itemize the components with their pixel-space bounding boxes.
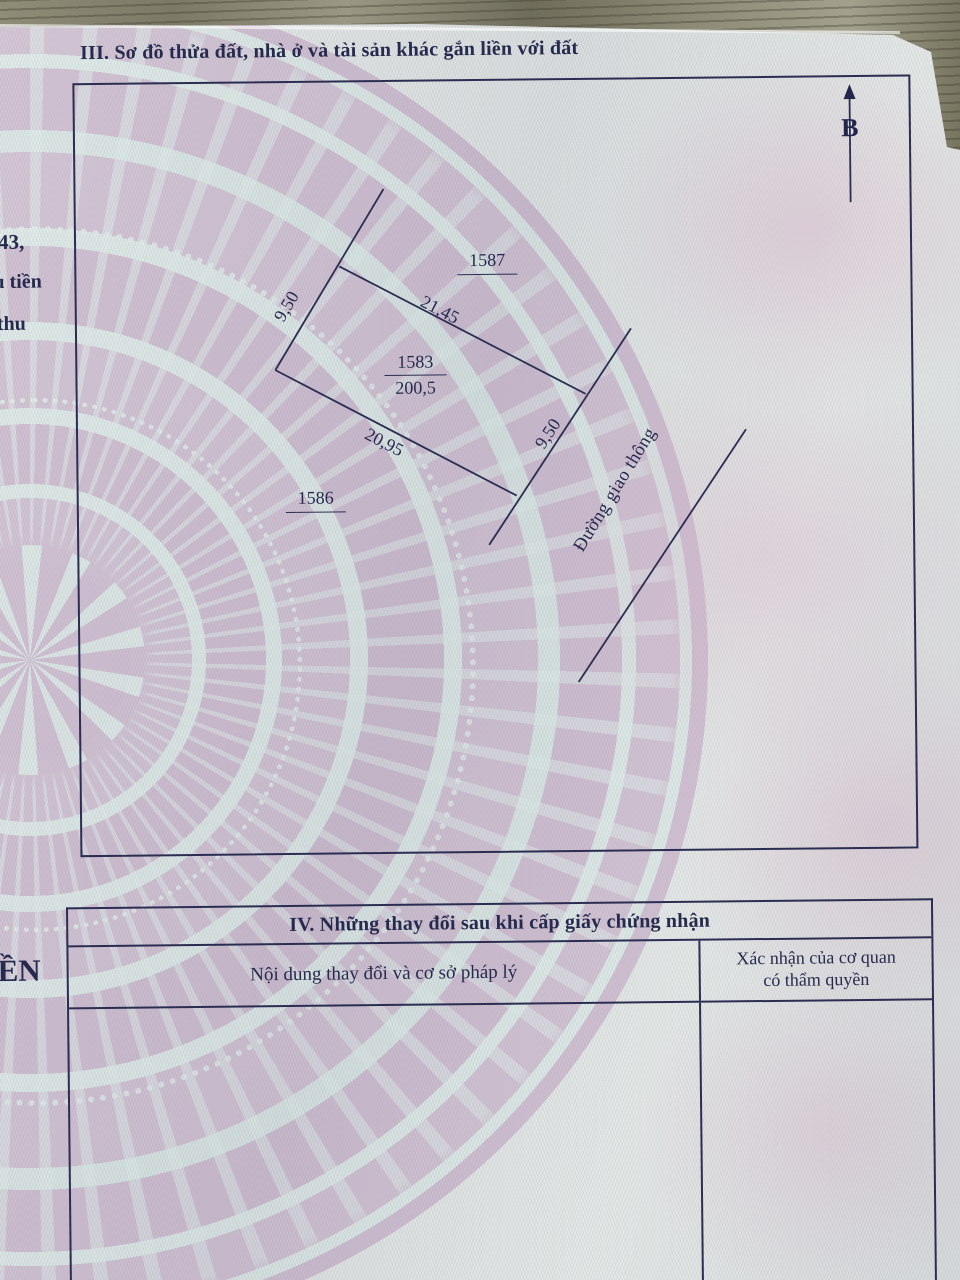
parcel-diagram-box <box>72 74 918 857</box>
section4-header-row: Nội dung thay đổi và cơ sở pháp lý Xác n… <box>68 938 932 1009</box>
section3-title: III. Sơ đồ thửa đất, nhà ở và tài sản kh… <box>80 34 900 66</box>
adjacent-page-text-fragment: u tiền <box>0 271 42 295</box>
parcel-area: 200,5 <box>384 375 446 399</box>
col-change-content-header: Nội dung thay đổi và cơ sở pháp lý <box>68 941 701 1008</box>
col-authority-confirmation-header: Xác nhận của cơ quan có thẩm quyền <box>700 938 932 1000</box>
adjacent-page-text-fragment: thu <box>0 313 26 336</box>
parcel-1586-label: 1586 <box>286 487 346 513</box>
photo-of-land-certificate: III. Sơ đồ thửa đất, nhà ở và tài sản kh… <box>0 0 960 1280</box>
parcel-number: 1583 <box>384 351 446 376</box>
certificate-page-content: III. Sơ đồ thửa đất, nhà ở và tài sản kh… <box>0 0 960 1280</box>
parcel-number-and-area: 1583 200,5 <box>384 351 446 399</box>
adjacent-page-text-fragment: 43, <box>0 230 24 255</box>
adjacent-page-text-fragment: ỀN <box>0 953 41 989</box>
section4-table: IV. Những thay đổi sau khi cấp giấy chứn… <box>66 898 937 1280</box>
empty-confirmation-cell <box>701 1000 935 1280</box>
section4-empty-rows <box>69 1000 935 1280</box>
col2-header-line2: có thẩm quyền <box>763 969 869 992</box>
parcel-1587-label: 1587 <box>457 250 517 276</box>
empty-change-content-cell <box>69 1003 704 1280</box>
north-direction-label: B <box>837 113 863 143</box>
col2-header-line1: Xác nhận của cơ quan <box>736 947 896 970</box>
